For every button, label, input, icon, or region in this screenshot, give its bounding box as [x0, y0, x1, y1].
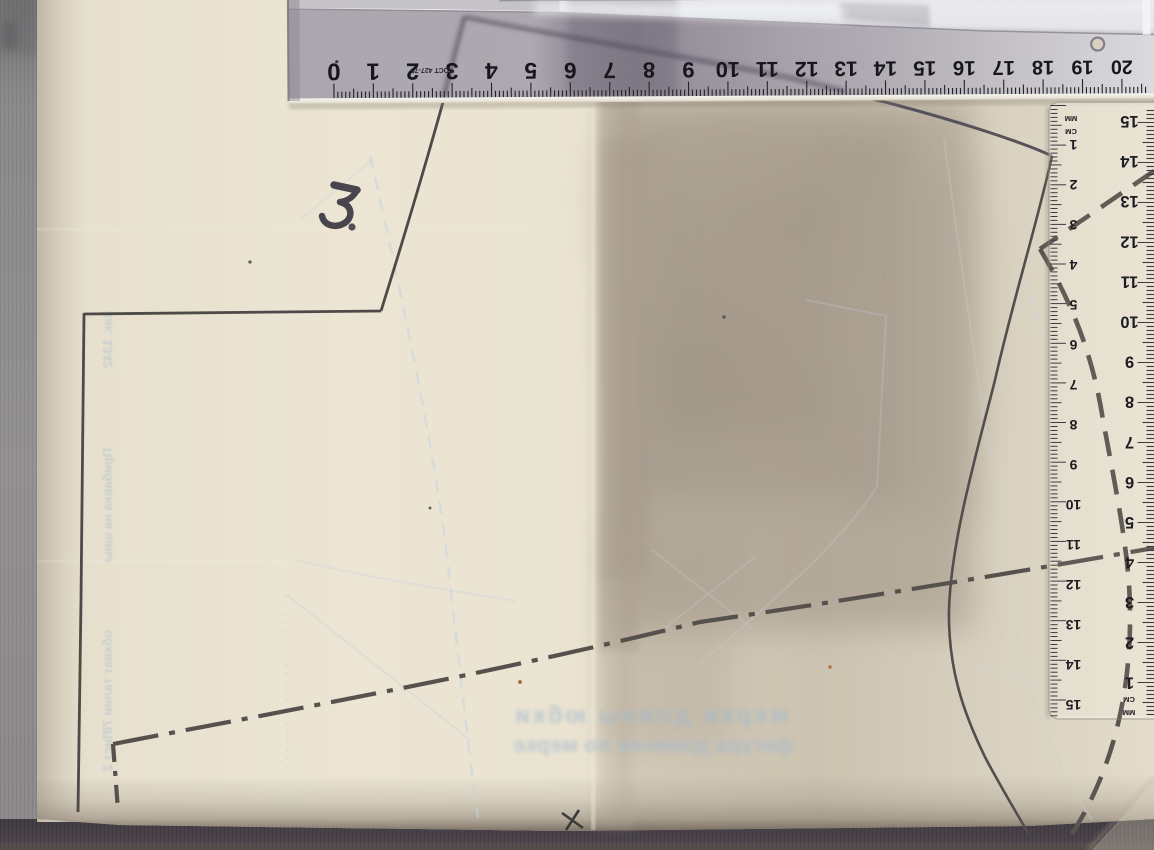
svg-text:8: 8: [643, 57, 655, 82]
svg-text:14: 14: [1066, 657, 1082, 673]
svg-text:2: 2: [1069, 177, 1077, 193]
svg-text:7: 7: [1125, 433, 1134, 451]
svg-text:обхват талии 76: обхват талии 76: [100, 630, 115, 734]
svg-text:9: 9: [1125, 353, 1134, 371]
svg-text:8: 8: [1069, 417, 1077, 433]
svg-text:мерки длины юбки: мерки длины юбки: [512, 702, 788, 729]
svg-text:MM: MM: [1065, 114, 1078, 123]
svg-text:12: 12: [1120, 232, 1138, 250]
svg-text:CM: CM: [1123, 695, 1135, 704]
svg-text:13: 13: [1120, 192, 1138, 210]
svg-text:фигура длиннее по мерке: фигура длиннее по мерке: [513, 734, 794, 757]
svg-text:20: 20: [1111, 55, 1133, 77]
svg-text:5: 5: [524, 58, 537, 84]
svg-text:11: 11: [1066, 537, 1081, 553]
svg-text:14: 14: [1120, 152, 1139, 170]
svg-text:16: 16: [953, 56, 976, 79]
svg-text:19: 19: [1071, 56, 1093, 78]
svg-text:11: 11: [1121, 272, 1138, 290]
svg-text:7: 7: [603, 58, 616, 83]
svg-text:11: 11: [756, 57, 779, 82]
svg-text:Прибавка на швы: Прибавка на швы: [100, 448, 115, 563]
svg-text:10: 10: [1066, 497, 1082, 513]
svg-text:6: 6: [1069, 337, 1077, 353]
svg-text:4: 4: [485, 58, 498, 84]
svg-text:2: 2: [1125, 633, 1134, 651]
svg-text:10: 10: [1120, 313, 1138, 331]
svg-text:6: 6: [1125, 473, 1134, 491]
svg-text:7: 7: [1069, 377, 1077, 393]
svg-text:10: 10: [716, 57, 740, 82]
svg-text:15: 15: [913, 56, 936, 79]
svg-text:13: 13: [1066, 617, 1082, 633]
svg-text:0: 0: [327, 58, 341, 85]
svg-text:15: 15: [1066, 697, 1082, 713]
svg-text:8: 8: [1125, 393, 1134, 411]
svg-text:3: 3: [1069, 217, 1077, 233]
svg-text:Зак. 1342: Зак. 1342: [100, 310, 115, 368]
svg-text:9: 9: [682, 57, 694, 82]
svg-text:1: 1: [1069, 137, 1077, 153]
svg-text:14: 14: [873, 56, 897, 79]
svg-text:17: 17: [992, 56, 1015, 78]
svg-text:MM: MM: [1123, 708, 1136, 717]
svg-text:12: 12: [795, 57, 819, 81]
svg-text:5: 5: [1125, 513, 1134, 531]
svg-text:6: 6: [564, 58, 577, 84]
svg-text:3: 3: [1125, 593, 1134, 611]
svg-text:4: 4: [1124, 553, 1134, 571]
svg-text:13: 13: [834, 57, 858, 80]
svg-text:CM: CM: [1065, 127, 1077, 136]
svg-text:18: 18: [1032, 56, 1054, 78]
svg-text:12: 12: [1066, 577, 1082, 593]
svg-text:5: 5: [1069, 297, 1077, 313]
svg-text:4: 4: [1069, 257, 1077, 273]
svg-text:ГОСТ 427-75: ГОСТ 427-75: [411, 66, 453, 73]
svg-text:1: 1: [367, 58, 380, 85]
svg-text:9: 9: [1069, 457, 1077, 473]
svg-text:1: 1: [1125, 673, 1134, 691]
svg-text:15: 15: [1120, 112, 1138, 130]
